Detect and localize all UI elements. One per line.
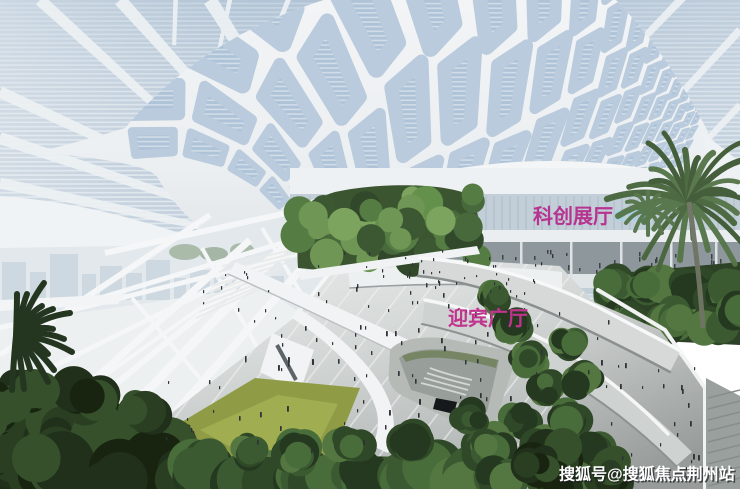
svg-text:科创展厅: 科创展厅	[533, 204, 613, 228]
svg-text:迎宾广厅: 迎宾广厅	[448, 306, 528, 330]
svg-text:搜狐号@搜狐焦点荆州站: 搜狐号@搜狐焦点荆州站	[559, 465, 735, 484]
